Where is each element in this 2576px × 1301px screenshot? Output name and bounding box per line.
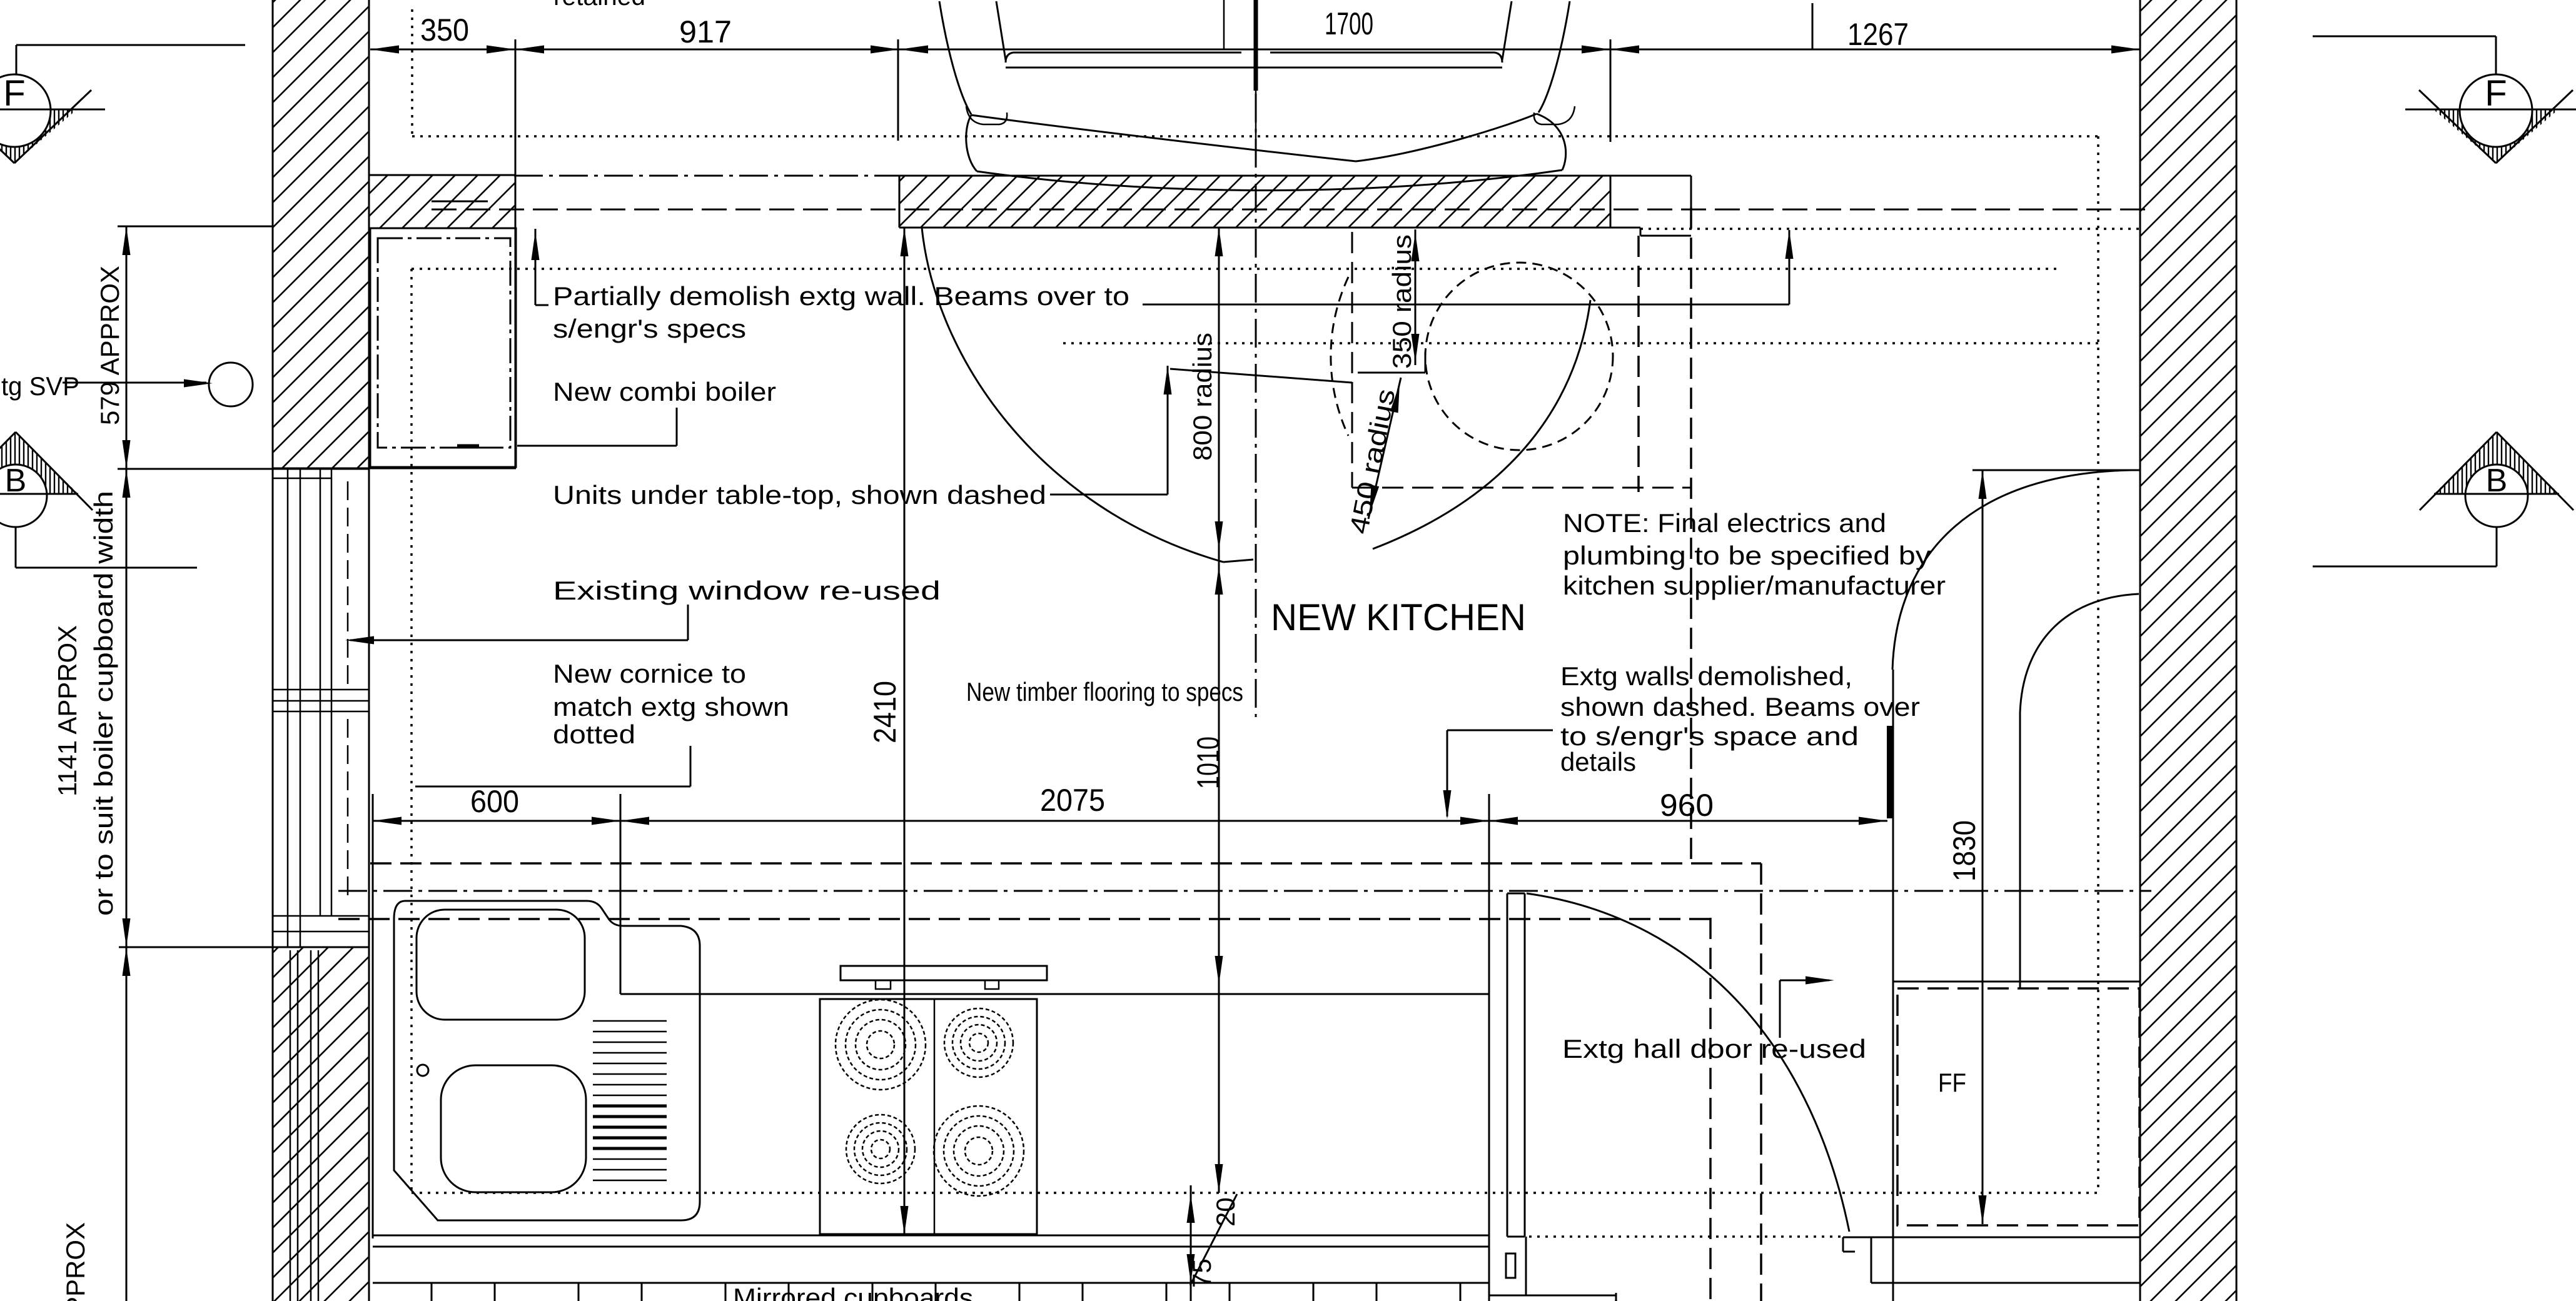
- svg-text:s/engr's specs: s/engr's specs: [553, 314, 746, 343]
- svg-text:B: B: [2486, 463, 2508, 499]
- svg-text:FF: FF: [1938, 1068, 1966, 1097]
- svg-text:NOTE: Final electrics and: NOTE: Final electrics and: [1563, 508, 1886, 538]
- svg-text:APPROX: APPROX: [61, 1222, 90, 1301]
- svg-text:960: 960: [1660, 788, 1714, 823]
- svg-text:1830: 1830: [1947, 820, 1982, 882]
- svg-text:dotted: dotted: [553, 720, 635, 749]
- svg-text:B: B: [5, 463, 27, 499]
- svg-text:800 radius: 800 radius: [1188, 333, 1217, 461]
- svg-text:or to suit boiler cupboard wid: or to suit boiler cupboard width: [89, 491, 118, 916]
- svg-text:600: 600: [470, 784, 519, 819]
- svg-text:Extg walls demolished,: Extg walls demolished,: [1560, 661, 1852, 691]
- svg-text:F: F: [3, 73, 25, 114]
- svg-text:Mirrored cupboards: Mirrored cupboards: [733, 1283, 973, 1301]
- svg-text:1700: 1700: [1325, 6, 1373, 41]
- svg-text:2075: 2075: [1040, 783, 1105, 818]
- svg-text:New cornice to: New cornice to: [553, 659, 746, 688]
- svg-text:F: F: [2485, 73, 2507, 114]
- svg-text:1010: 1010: [1191, 736, 1226, 789]
- svg-text:Extg hall door re-used: Extg hall door re-used: [1562, 1034, 1866, 1063]
- svg-text:2410: 2410: [867, 681, 902, 743]
- svg-text:579 APPROX: 579 APPROX: [95, 266, 124, 425]
- svg-text:shown dashed. Beams over: shown dashed. Beams over: [1560, 692, 1920, 721]
- svg-text:retained: retained: [553, 0, 645, 11]
- svg-text:kitchen supplier/manufacturer: kitchen supplier/manufacturer: [1563, 571, 1946, 600]
- svg-text:917: 917: [679, 14, 732, 49]
- svg-text:match extg shown: match extg shown: [553, 692, 789, 721]
- svg-text:NEW KITCHEN: NEW KITCHEN: [1271, 596, 1526, 638]
- svg-text:Existing window re-used: Existing window re-used: [553, 576, 941, 605]
- svg-text:350 radius: 350 radius: [1387, 234, 1417, 369]
- svg-text:Partially demolish extg wall.: Partially demolish extg wall. Beams over…: [553, 281, 1129, 311]
- svg-text:New timber flooring to specs: New timber flooring to specs: [966, 677, 1243, 706]
- svg-text:1267: 1267: [1847, 17, 1909, 52]
- svg-text:plumbing to be specified by: plumbing to be specified by: [1563, 541, 1931, 570]
- svg-text:to s/engr's space and: to s/engr's space and: [1560, 721, 1859, 751]
- svg-text:Units under table-top, shown d: Units under table-top, shown dashed: [553, 480, 1046, 510]
- svg-text:20: 20: [1211, 1197, 1240, 1227]
- svg-text:tg SVP: tg SVP: [1, 371, 79, 401]
- svg-text:75: 75: [1187, 1258, 1216, 1288]
- svg-text:350: 350: [420, 13, 469, 48]
- svg-text:New combi boiler: New combi boiler: [553, 377, 776, 406]
- svg-text:details: details: [1560, 747, 1636, 776]
- svg-text:1141 APPROX: 1141 APPROX: [53, 625, 82, 796]
